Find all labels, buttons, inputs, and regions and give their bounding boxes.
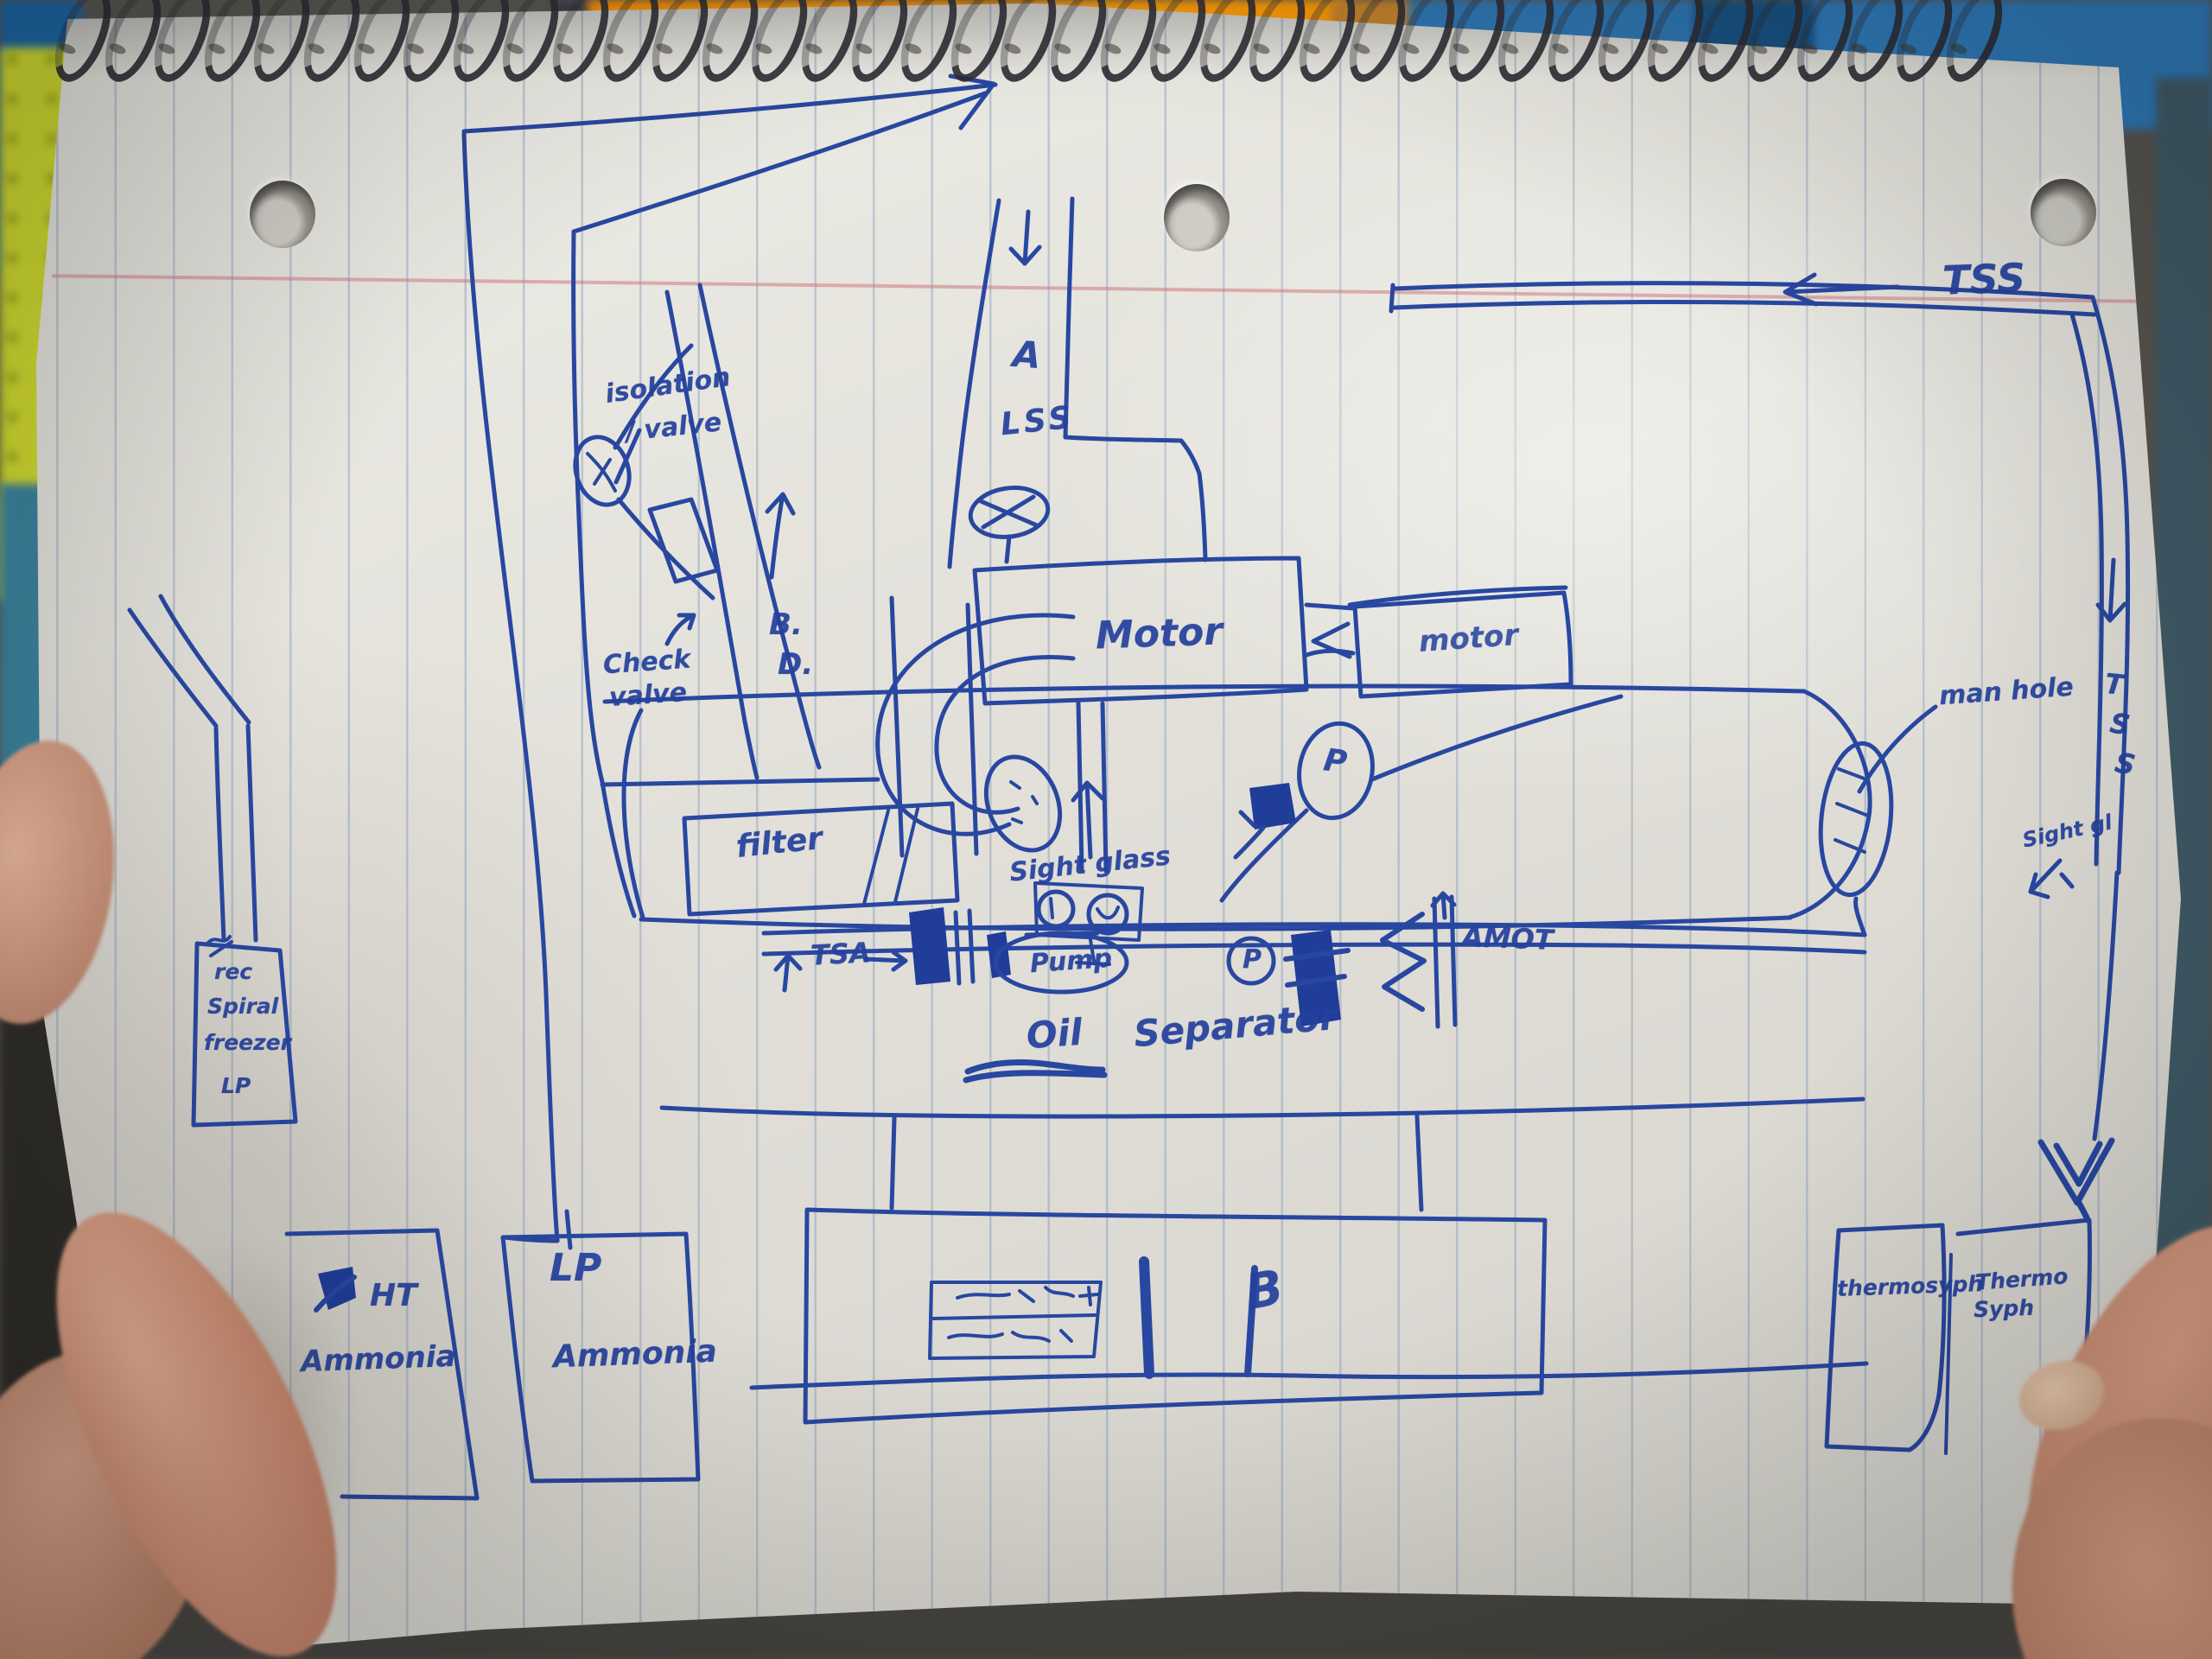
photo-of-notebook: TSS A LSS isolation / valve Check valve … bbox=[0, 0, 2212, 1659]
scratched-word bbox=[966, 1063, 1104, 1080]
label-pump: Pump bbox=[1029, 946, 1113, 978]
duct-left-wall bbox=[950, 200, 999, 567]
label-motor: Motor bbox=[1095, 613, 1223, 655]
label-tss-top: TSS bbox=[1942, 257, 2026, 300]
label-tss-vert-t: T bbox=[2103, 670, 2125, 699]
label-bd-2: D. bbox=[778, 650, 813, 679]
pipe-left-vertical bbox=[464, 134, 557, 1241]
label-filter: filter bbox=[734, 823, 823, 863]
duct-down-arrow bbox=[1011, 212, 1039, 264]
heavy-stroke bbox=[1144, 1262, 1149, 1374]
label-gauge-p-top: P bbox=[1322, 745, 1349, 779]
label-thermo-1: thermosyph bbox=[1837, 1273, 1984, 1300]
label-rec-2: Spiral bbox=[207, 995, 278, 1017]
duct-valve-x bbox=[981, 497, 1037, 562]
label-tss-vert-s1: S bbox=[2108, 709, 2132, 740]
label-amot: AMOT bbox=[1461, 923, 1554, 954]
pump-topline bbox=[1027, 933, 1097, 935]
tsa-right-arrow bbox=[866, 952, 906, 969]
pipe-top-diagonal bbox=[574, 93, 985, 232]
label-tsa: TSA bbox=[810, 938, 871, 969]
label-thermo-2b: Syph bbox=[1974, 1297, 2035, 1320]
label-motor-small: motor bbox=[1418, 620, 1519, 657]
label-check-1: Check bbox=[602, 646, 691, 678]
label-bd-1: B. bbox=[769, 610, 803, 639]
tss-left-arrow bbox=[1785, 275, 1897, 304]
pipe-inner-vertical bbox=[574, 232, 602, 782]
big-arrowhead-down bbox=[2041, 1141, 2112, 1220]
label-oil: Oil bbox=[1026, 1014, 1084, 1054]
pipe-left-edge-b bbox=[161, 596, 249, 722]
suction-flange-dots bbox=[1011, 782, 1037, 823]
pipe-left-edge-a bbox=[130, 610, 216, 726]
valve-block-1 bbox=[909, 907, 950, 985]
label-duct-lss: LSS bbox=[999, 403, 1076, 442]
motor-drop-pipes bbox=[1073, 703, 1106, 871]
manhole-leader bbox=[1859, 707, 1935, 791]
bench-line bbox=[752, 1363, 1866, 1388]
filter-hatch bbox=[864, 809, 918, 904]
label-rec-3: freezer bbox=[204, 1032, 291, 1053]
isolation-valve-scribble bbox=[588, 454, 615, 491]
label-thermo-2a: Thermo bbox=[1974, 1265, 2069, 1293]
gauge-leader-right bbox=[1372, 696, 1621, 779]
label-rec-4: LP bbox=[221, 1075, 251, 1096]
sightglass-right-arrow bbox=[2031, 861, 2072, 897]
label-lp-sub: Ammonia bbox=[552, 1337, 717, 1374]
label-rec-1: rec bbox=[214, 961, 252, 982]
suction-flange bbox=[973, 746, 1073, 861]
tss-pipe-right-b bbox=[2072, 315, 2101, 864]
label-check-2: valve bbox=[608, 680, 688, 711]
manhole-cover bbox=[1814, 740, 1898, 898]
vessel-right-cap bbox=[1789, 691, 1870, 918]
drop-pipe-left bbox=[892, 1118, 894, 1208]
lower-long-line bbox=[662, 1099, 1863, 1116]
amot-pipes bbox=[1433, 893, 1455, 1027]
label-b-mark: B bbox=[1242, 1264, 1287, 1319]
rec-pipes bbox=[216, 726, 256, 940]
tss-pipe-right-lower bbox=[2094, 873, 2117, 1139]
label-duct-a: A bbox=[1012, 336, 1042, 374]
tsa-up-arrow bbox=[776, 956, 800, 990]
receiver-inner-box bbox=[930, 1282, 1101, 1358]
gauge-blob bbox=[1249, 783, 1296, 829]
label-lp: LP bbox=[550, 1249, 601, 1287]
sightglass-port-1 bbox=[1039, 892, 1073, 926]
thermo-box-1 bbox=[1827, 1225, 1944, 1450]
bd-up-arrow bbox=[767, 494, 793, 577]
receiver-box bbox=[805, 1210, 1545, 1422]
label-ht: HT bbox=[370, 1281, 417, 1312]
drop-pipe-right bbox=[1417, 1116, 1421, 1210]
duct-jog bbox=[1065, 437, 1205, 560]
check-valve-leader bbox=[667, 615, 694, 644]
vessel-left-cap bbox=[602, 710, 643, 918]
label-gauge-p-line: P bbox=[1243, 947, 1262, 973]
spiral-binding bbox=[0, 0, 2212, 95]
motor-connectors bbox=[1306, 605, 1353, 657]
